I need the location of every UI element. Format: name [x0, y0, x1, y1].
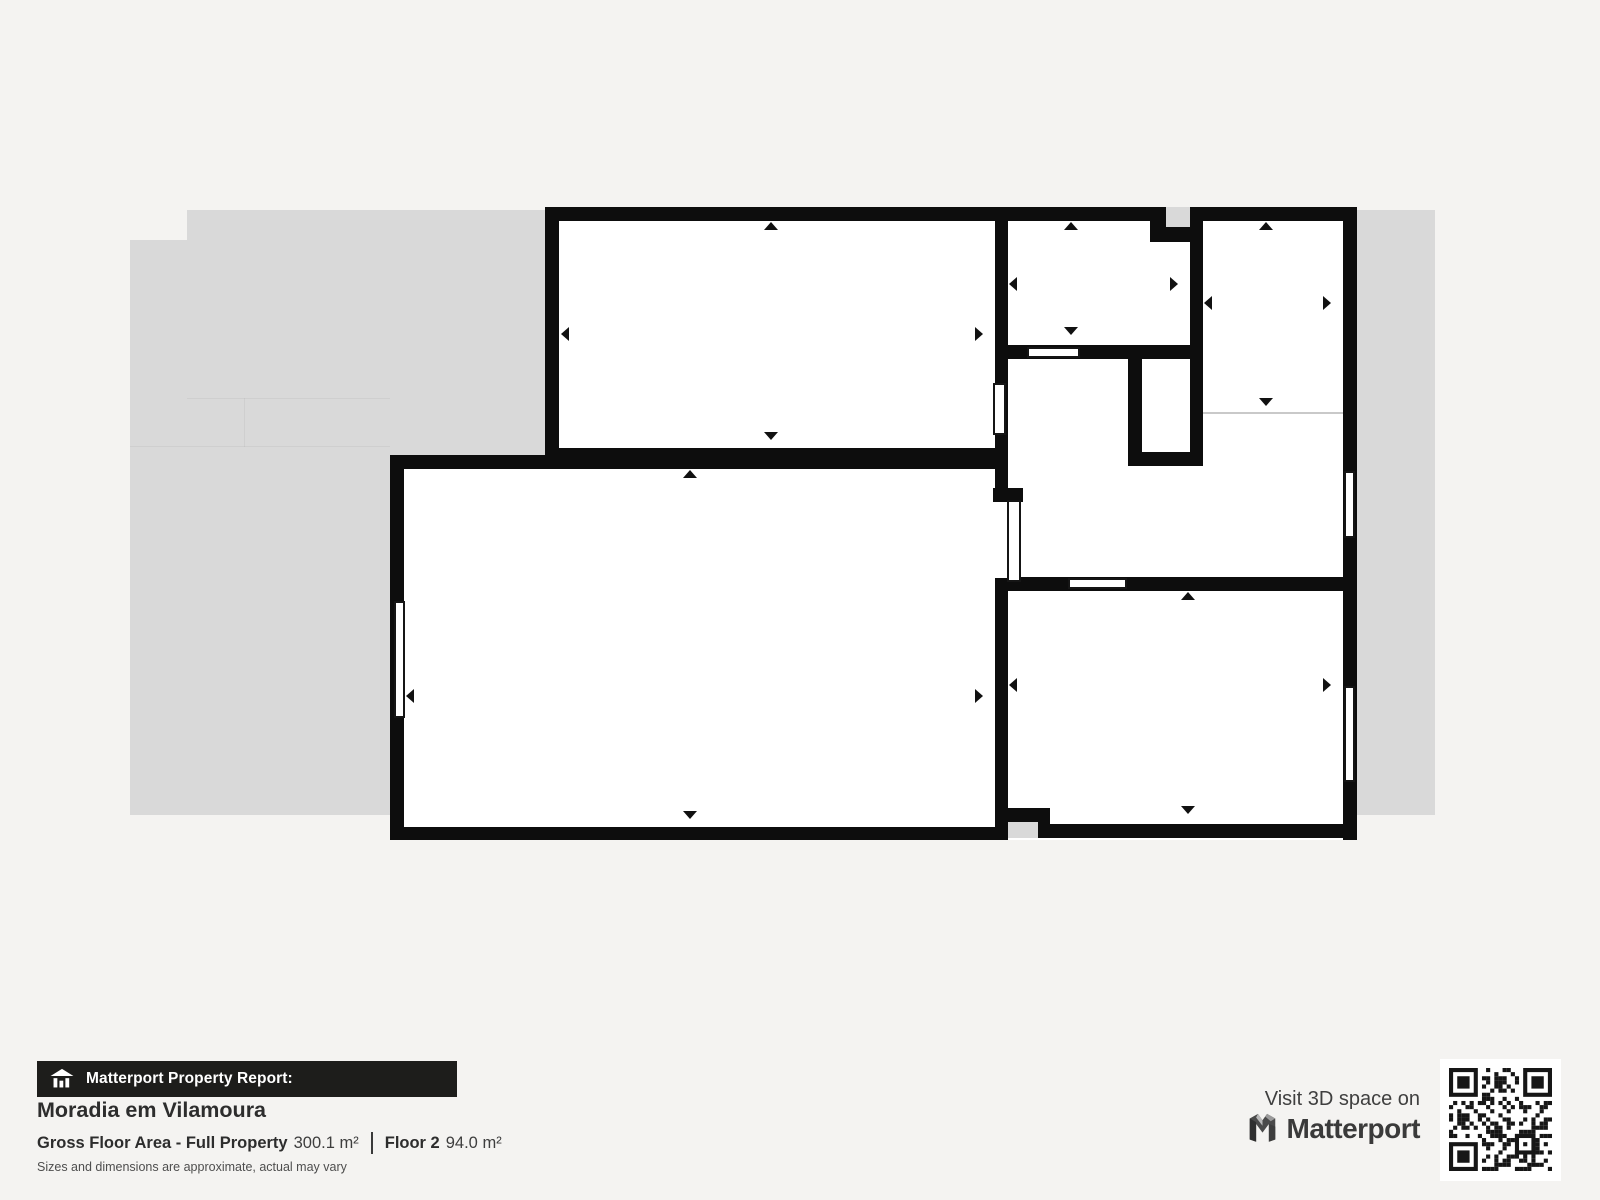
matterport-logo-icon [1247, 1112, 1278, 1145]
report-bar-label: Matterport Property Report: [86, 1070, 293, 1088]
wall-segment [1190, 207, 1203, 466]
dimension-arrow-down [1259, 398, 1273, 406]
wall-segment [545, 207, 1357, 221]
dimension-arrow-left [1204, 296, 1212, 310]
dimension-arrow-up [764, 222, 778, 230]
door-marker [1027, 347, 1080, 358]
footprint-room-line [187, 398, 390, 399]
wall-segment [1038, 824, 1357, 838]
wall-segment [1128, 345, 1142, 466]
dimension-arrow-up [683, 470, 697, 478]
door-marker [993, 383, 1006, 435]
dimension-arrow-right [1323, 678, 1331, 692]
wall-segment [545, 207, 559, 462]
dimension-arrow-right [975, 689, 983, 703]
footprint-notch [1008, 822, 1038, 838]
matterport-wordmark: Matterport [1287, 1113, 1420, 1145]
gross-floor-area-value: 300.1 m² [294, 1134, 359, 1153]
property-name: Moradia em Vilamoura [37, 1098, 266, 1123]
house-report-icon [50, 1068, 74, 1090]
footprint-room-line [130, 446, 390, 447]
dimension-arrow-left [1009, 678, 1017, 692]
dimension-arrow-left [406, 689, 414, 703]
disclaimer-text: Sizes and dimensions are approximate, ac… [37, 1160, 347, 1174]
room-area-fill [390, 455, 1008, 840]
matterport-floor-plan-report: Bedroom 5.48 m × 2.91 m 15.9 m² Bathroom… [0, 0, 1600, 1200]
dimension-arrow-down [1064, 327, 1078, 335]
wall-segment [995, 577, 1357, 591]
matterport-logo: Matterport [1247, 1112, 1420, 1145]
wall-segment [390, 827, 1008, 840]
dimension-arrow-right [975, 327, 983, 341]
dimension-arrow-left [1009, 277, 1017, 291]
floor-value: 94.0 m² [446, 1134, 502, 1153]
door-marker [1068, 578, 1127, 589]
window-marker [394, 601, 405, 718]
window-marker [1344, 471, 1355, 538]
dimension-arrow-down [764, 432, 778, 440]
dimension-arrow-up [1181, 592, 1195, 600]
footprint-notch [1166, 207, 1190, 227]
door-marker [1007, 500, 1021, 582]
dimension-arrow-down [1181, 806, 1195, 814]
window-marker [1344, 686, 1355, 782]
dimension-arrow-left [561, 327, 569, 341]
footprint-room-line [244, 398, 245, 447]
divider [371, 1132, 373, 1154]
dimension-arrow-right [1170, 277, 1178, 291]
gross-floor-area-label: Gross Floor Area - Full Property [37, 1134, 288, 1153]
dimension-arrow-right [1323, 296, 1331, 310]
dimension-arrow-up [1064, 222, 1078, 230]
visit-3d-space-text: Visit 3D space on [1265, 1088, 1420, 1111]
report-title-bar: Matterport Property Report: [37, 1061, 457, 1097]
floor-label: Floor 2 [385, 1134, 440, 1153]
room-area-fill [995, 207, 1357, 840]
qr-code [1440, 1059, 1561, 1181]
dimension-arrow-down [683, 811, 697, 819]
wall-segment [390, 455, 1008, 469]
floor-area-summary: Gross Floor Area - Full Property 300.1 m… [37, 1132, 502, 1154]
dimension-arrow-up [1259, 222, 1273, 230]
staircase-separator-line [1203, 412, 1343, 414]
